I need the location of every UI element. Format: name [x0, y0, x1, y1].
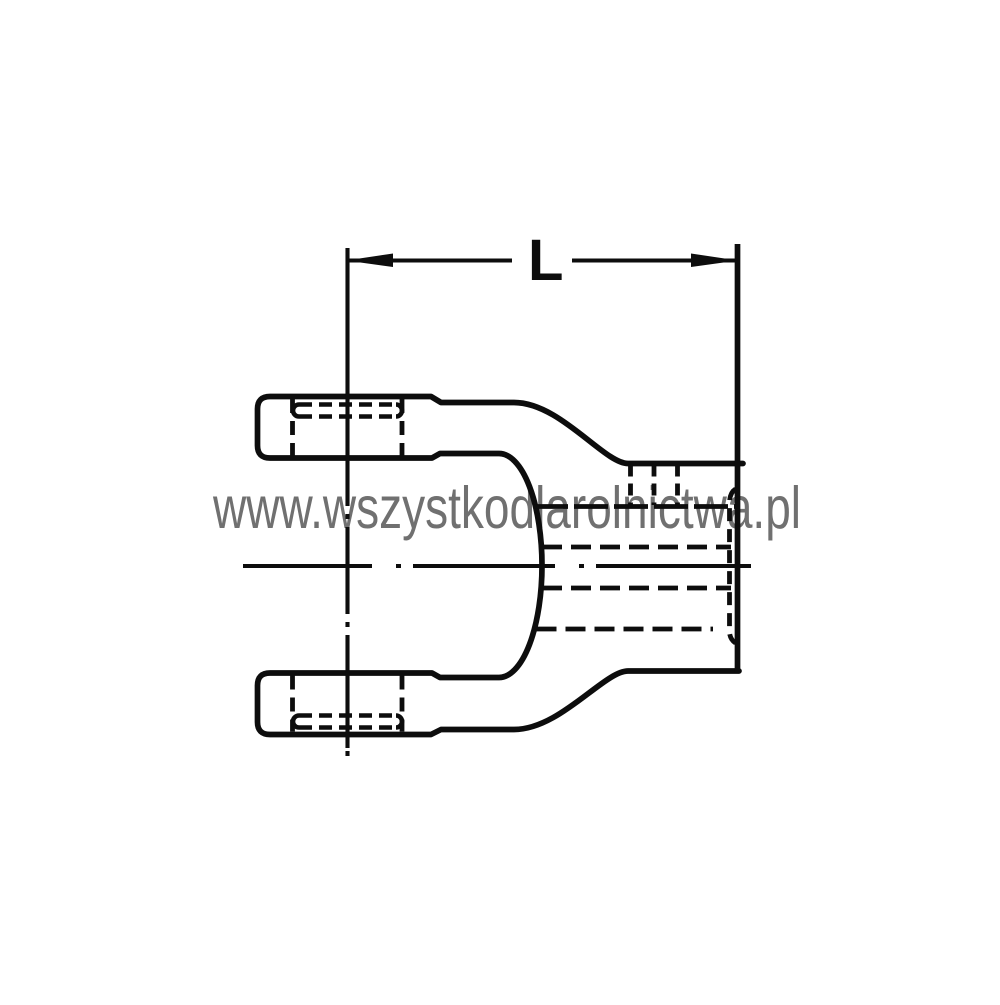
- svg-text:L: L: [528, 228, 563, 293]
